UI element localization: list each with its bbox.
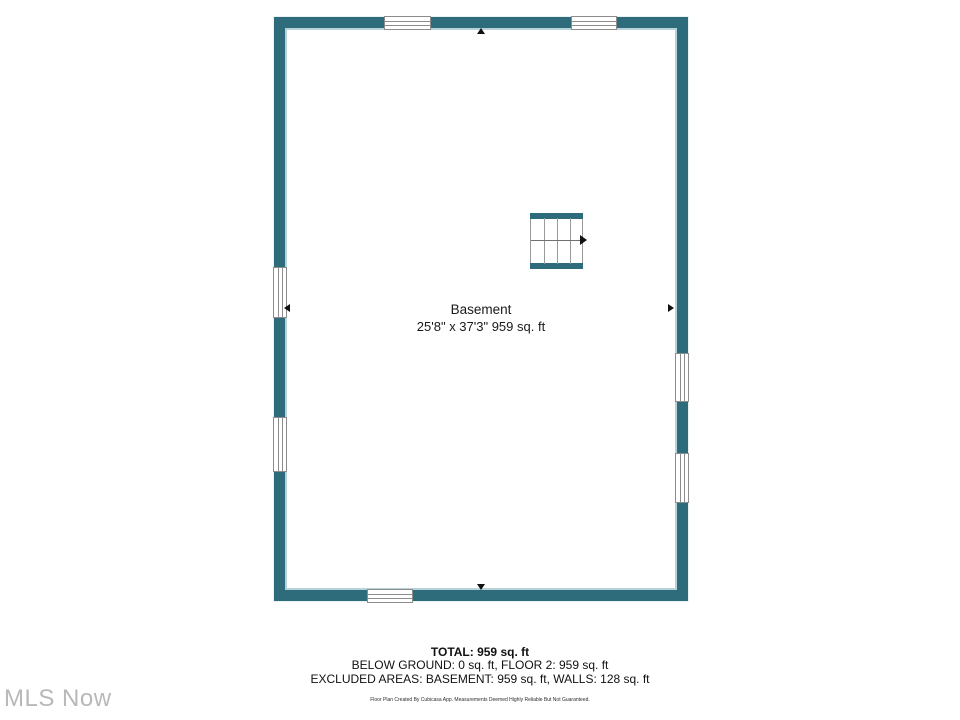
stair-step-line [544, 218, 545, 264]
stair-direction-arrow-icon [580, 235, 587, 245]
stair-direction-line [531, 240, 582, 241]
window-right-2 [675, 453, 689, 503]
stair-step-line [557, 218, 558, 264]
window-top-1 [384, 16, 431, 30]
summary-excluded: EXCLUDED AREAS: BASEMENT: 959 sq. ft, WA… [0, 673, 960, 686]
window-right-1 [675, 353, 689, 402]
stair-step-line [570, 218, 571, 264]
floorplan-canvas: Basement 25'8" x 37'3" 959 sq. ft TOTAL:… [0, 0, 960, 720]
room-label: Basement 25'8" x 37'3" 959 sq. ft [274, 302, 688, 335]
window-left-2 [273, 417, 287, 472]
window-bottom-1 [367, 589, 413, 603]
dim-arrow-bottom-icon [477, 584, 485, 590]
staircase [530, 213, 583, 269]
room-name: Basement [274, 302, 688, 318]
room-dimensions: 25'8" x 37'3" 959 sq. ft [274, 318, 688, 335]
watermark: MLS Now [4, 686, 112, 712]
summary-block: TOTAL: 959 sq. ft BELOW GROUND: 0 sq. ft… [0, 646, 960, 703]
disclaimer-text: Floor Plan Created By Cubicasa App. Meas… [0, 697, 960, 703]
window-top-2 [571, 16, 617, 30]
summary-total: TOTAL: 959 sq. ft [0, 646, 960, 659]
summary-below-ground: BELOW GROUND: 0 sq. ft, FLOOR 2: 959 sq.… [0, 659, 960, 672]
dim-arrow-top-icon [477, 28, 485, 34]
